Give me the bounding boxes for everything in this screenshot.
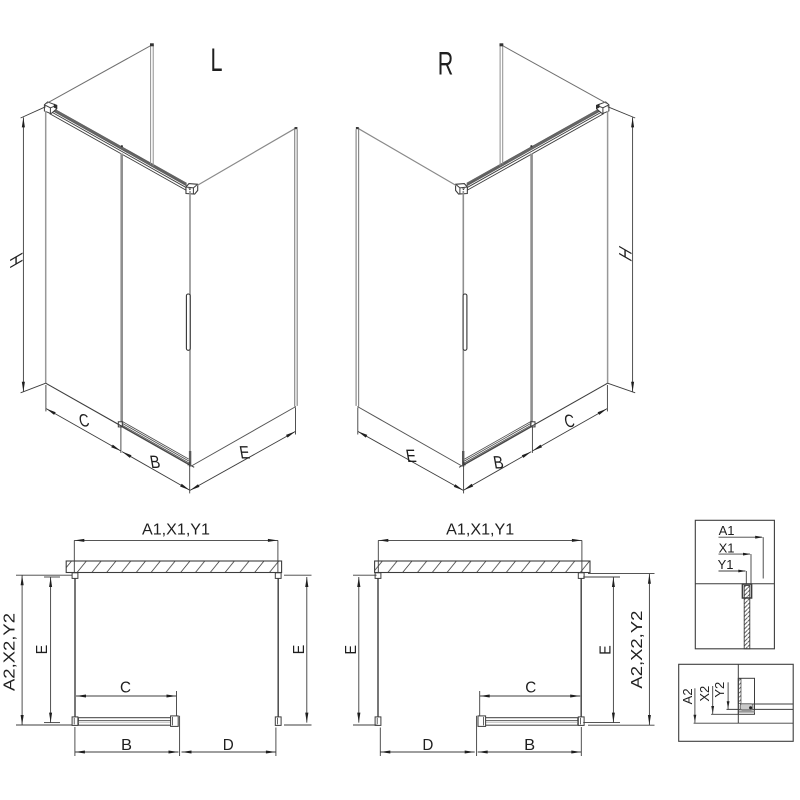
svg-text:D: D <box>223 737 234 754</box>
svg-text:B: B <box>121 737 132 754</box>
svg-text:L: L <box>211 42 223 78</box>
svg-text:E: E <box>343 645 360 655</box>
svg-text:Y2: Y2 <box>712 682 727 698</box>
svg-text:E: E <box>598 645 615 655</box>
svg-text:C: C <box>120 679 131 696</box>
svg-text:A2: A2 <box>680 688 695 704</box>
svg-text:R: R <box>438 46 454 82</box>
svg-text:B: B <box>524 737 535 754</box>
svg-text:A1,X1,Y1: A1,X1,Y1 <box>446 522 514 539</box>
svg-text:X1: X1 <box>719 540 735 555</box>
svg-text:D: D <box>422 737 433 754</box>
svg-text:X2: X2 <box>697 686 712 702</box>
svg-text:C: C <box>525 679 536 696</box>
svg-text:A1: A1 <box>719 523 735 538</box>
svg-text:A2,X2,Y2: A2,X2,Y2 <box>629 610 646 688</box>
svg-text:Y1: Y1 <box>718 557 734 572</box>
svg-text:E: E <box>34 645 51 655</box>
svg-text:A1,X1,Y1: A1,X1,Y1 <box>142 522 210 539</box>
svg-text:A2,X2,Y2: A2,X2,Y2 <box>2 613 19 691</box>
svg-text:E: E <box>291 645 308 655</box>
